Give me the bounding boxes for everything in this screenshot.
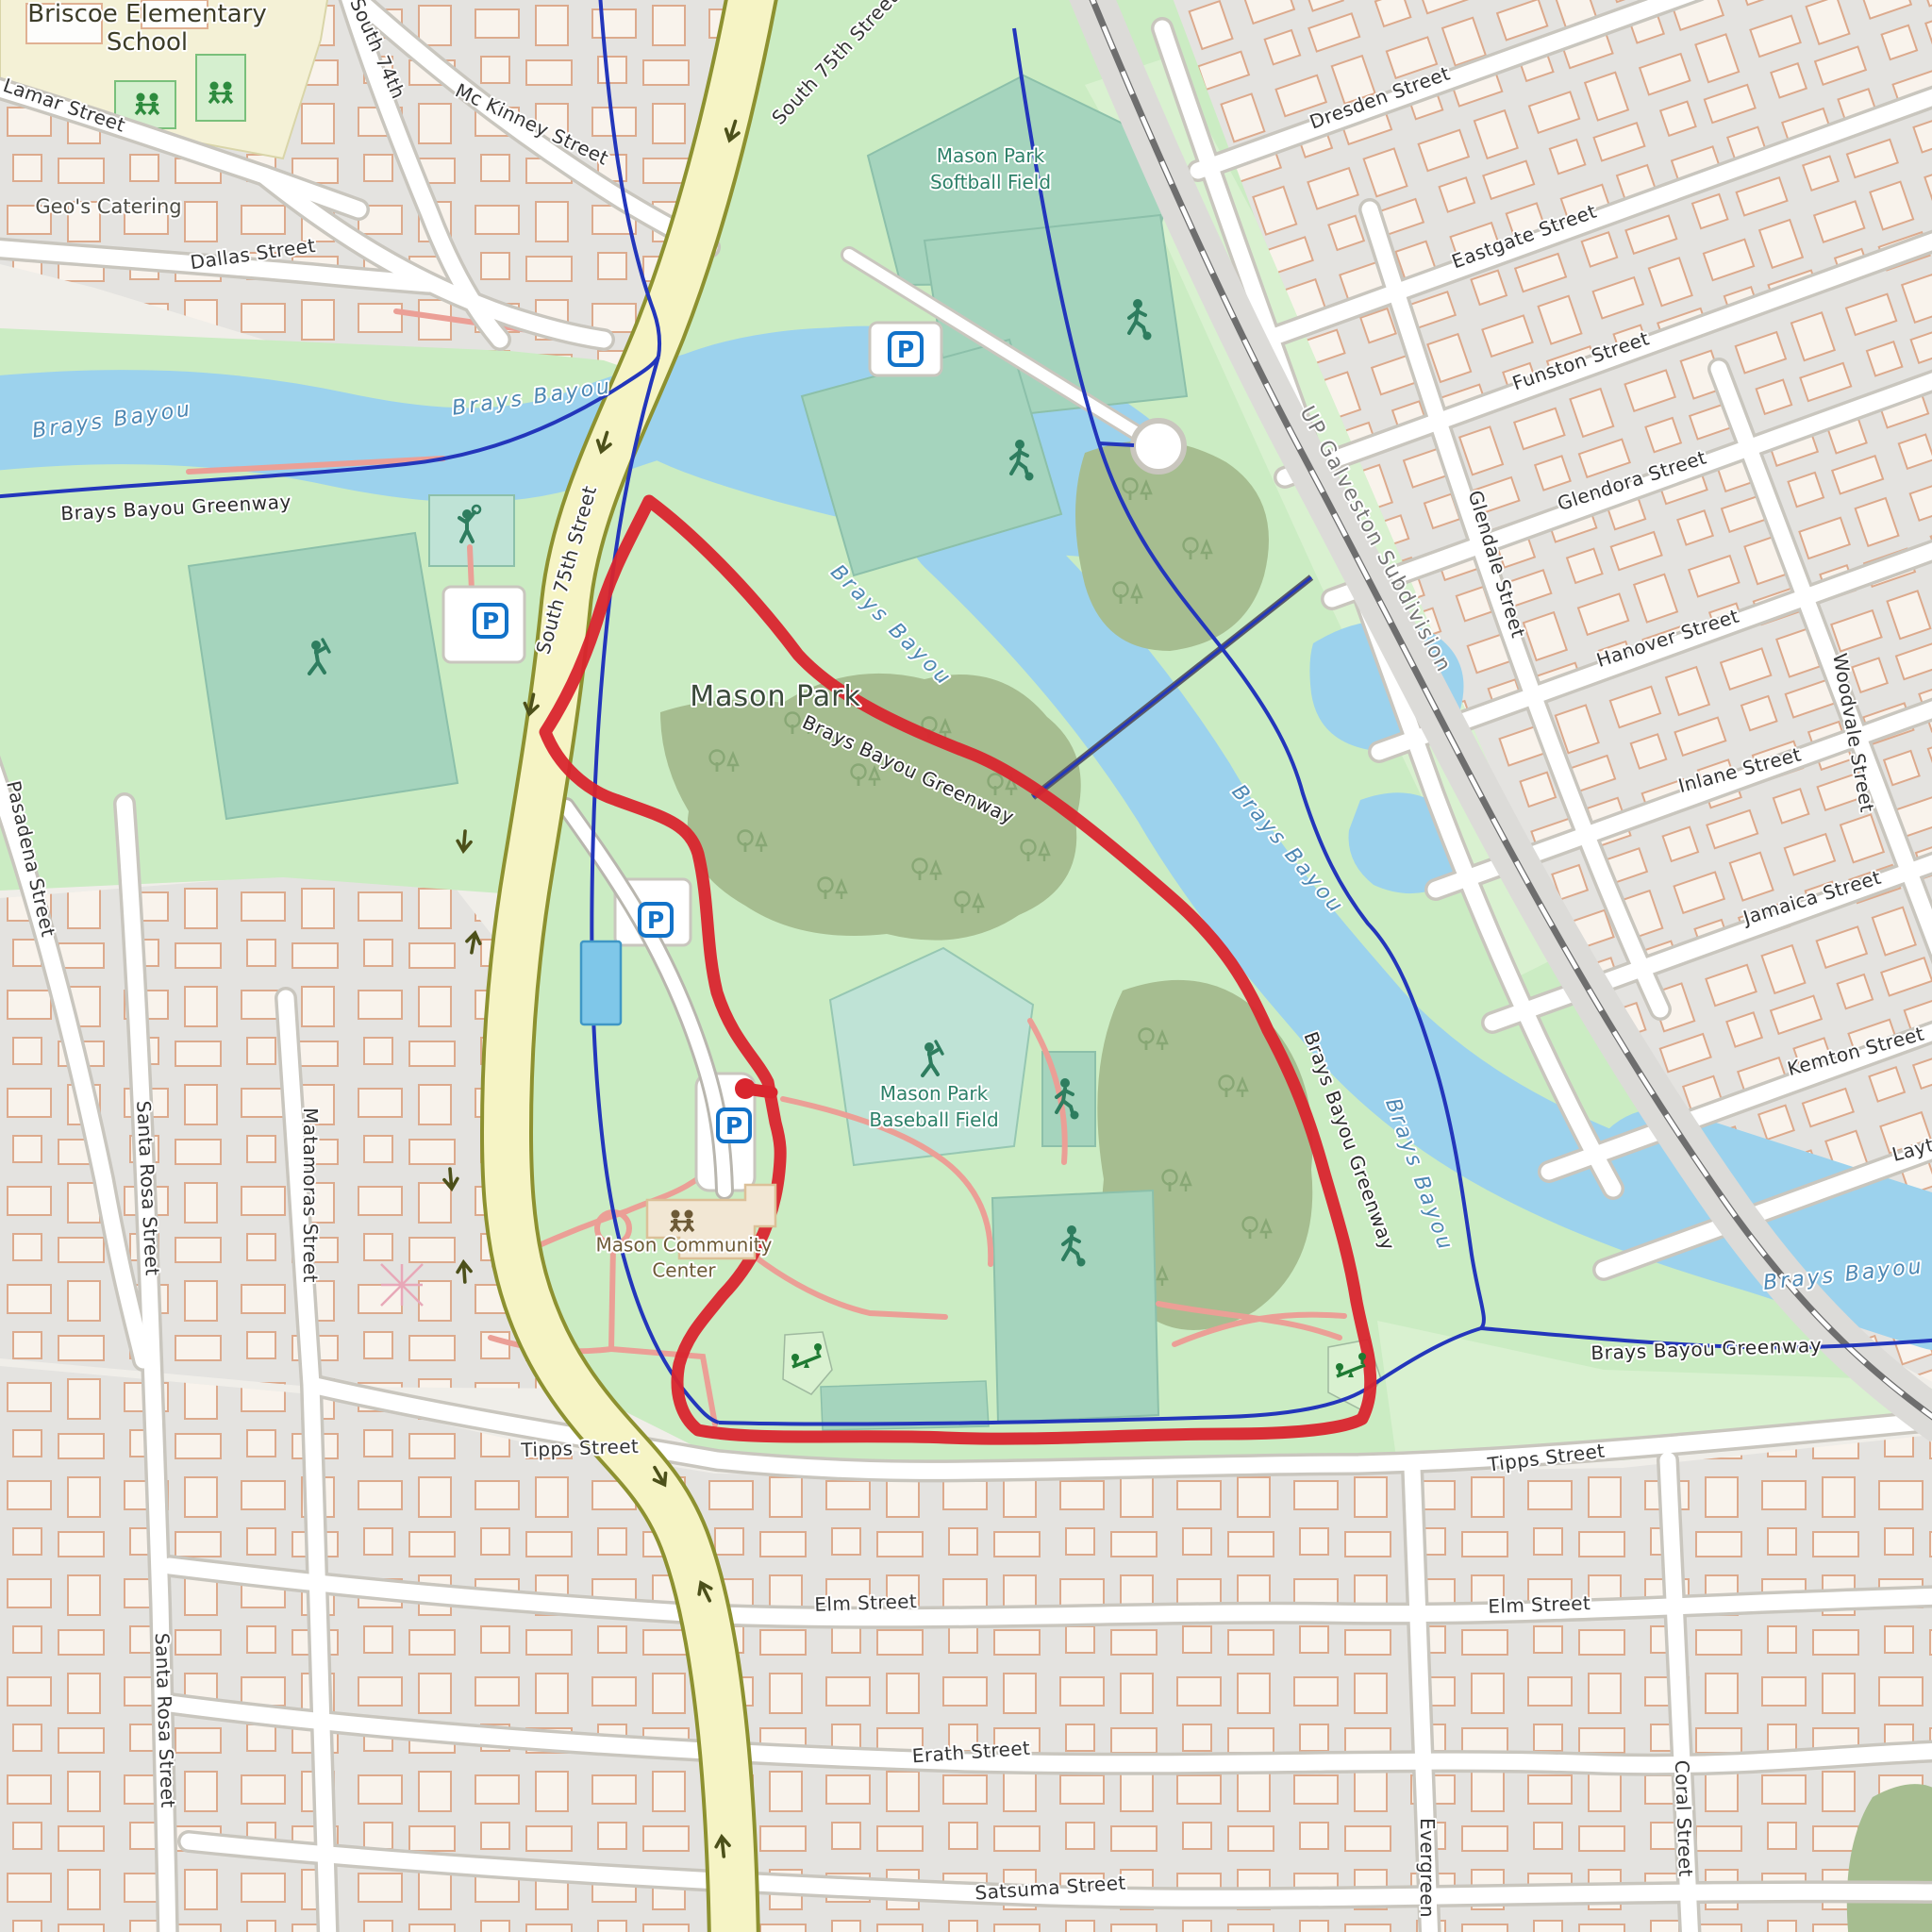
soccer-field-south: [992, 1191, 1158, 1423]
poi-label: Geo's Catering: [35, 195, 181, 218]
street-label: Coral Street: [1671, 1759, 1697, 1877]
street-label: Tipps Street: [520, 1435, 640, 1461]
swimming-pool: [581, 941, 621, 1024]
map-svg: Mason Park P: [0, 0, 1932, 1932]
parking-icon: [718, 1109, 750, 1141]
street-label: Matamoras Street: [299, 1108, 322, 1283]
ballfield-west: [189, 533, 458, 819]
parking-icon: [640, 904, 672, 936]
street-label: Elm Street: [814, 1590, 918, 1616]
parking-icon: [475, 605, 507, 637]
route-endpoint-marker[interactable]: [735, 1078, 756, 1099]
street-label: Elm Street: [1488, 1591, 1591, 1618]
map-canvas[interactable]: Mason Park P: [0, 0, 1932, 1932]
park-label: Mason Park: [690, 680, 861, 713]
street-label: Evergreen: [1416, 1818, 1439, 1918]
parking-icon: [890, 333, 922, 365]
